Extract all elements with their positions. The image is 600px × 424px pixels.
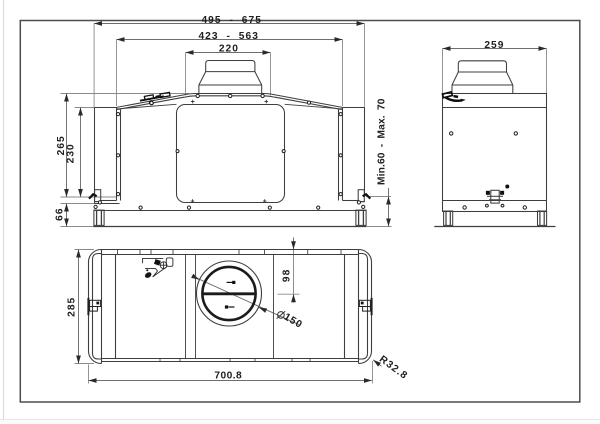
svg-text:285: 285 bbox=[67, 297, 78, 317]
svg-text:700.8: 700.8 bbox=[214, 370, 242, 381]
svg-text:230: 230 bbox=[66, 143, 77, 163]
svg-text:495 - 675: 495 - 675 bbox=[201, 15, 262, 26]
svg-text:220: 220 bbox=[219, 43, 239, 54]
svg-text:66: 66 bbox=[54, 207, 65, 220]
svg-text:Min.60 - Max. 70: Min.60 - Max. 70 bbox=[377, 98, 388, 185]
svg-text:98: 98 bbox=[282, 269, 293, 282]
svg-text:150: 150 bbox=[282, 312, 305, 331]
svg-text:423 - 563: 423 - 563 bbox=[198, 31, 259, 42]
svg-text:R32.8: R32.8 bbox=[377, 354, 410, 382]
svg-text:259: 259 bbox=[484, 40, 504, 51]
